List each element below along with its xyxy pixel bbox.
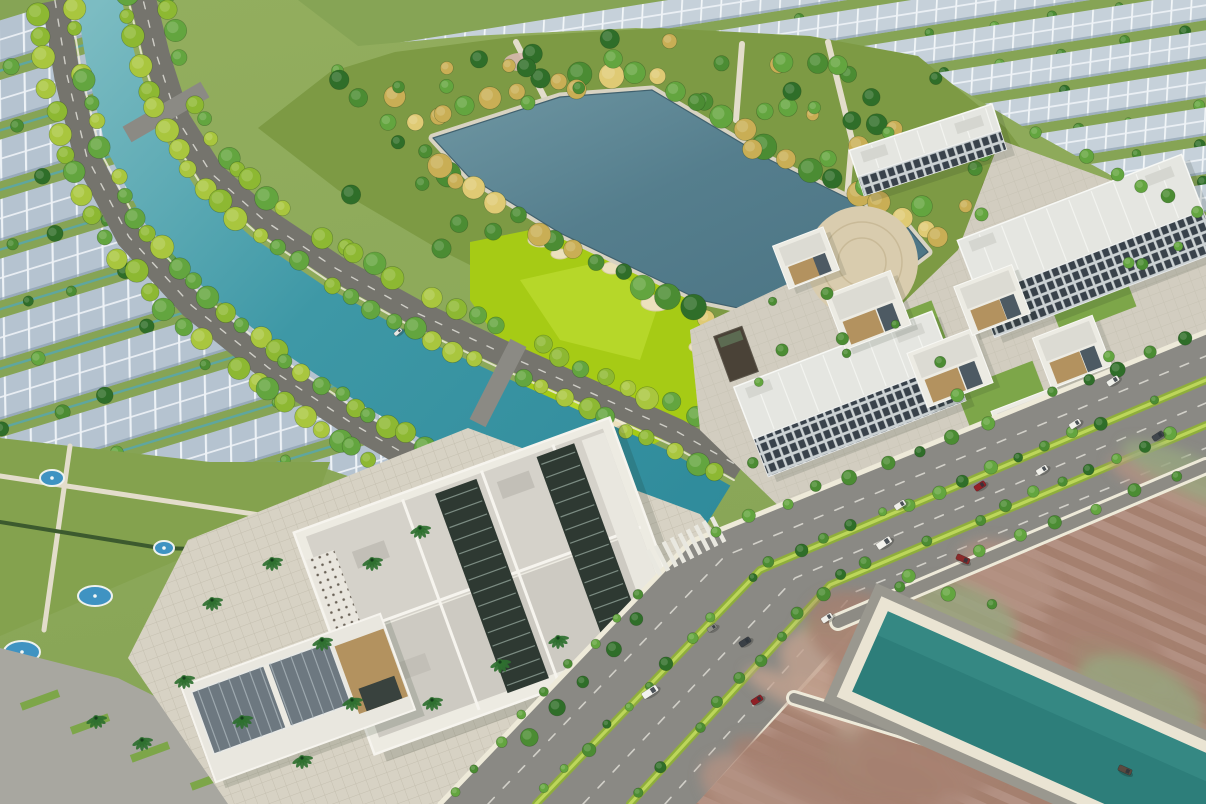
aerial-masterplan-render [0,0,1206,804]
render-stage [0,0,1206,804]
